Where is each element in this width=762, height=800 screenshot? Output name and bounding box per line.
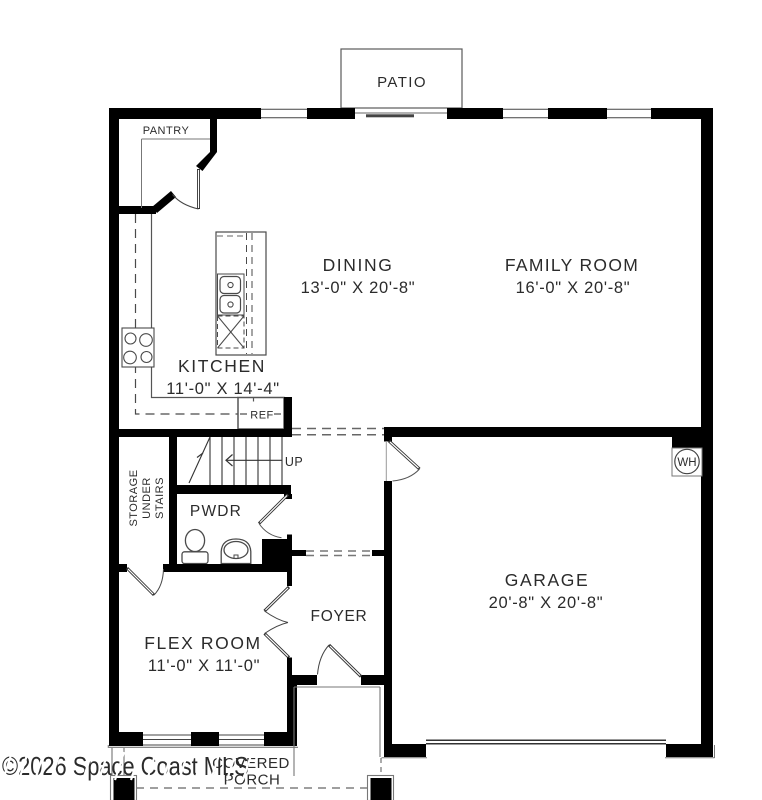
svg-text:11'-0" X 14'-4": 11'-0" X 14'-4" <box>166 380 280 398</box>
svg-text:GARAGE: GARAGE <box>505 570 589 590</box>
svg-text:WH: WH <box>677 457 696 469</box>
svg-text:DINING: DINING <box>323 255 394 275</box>
svg-text:FOYER: FOYER <box>311 608 368 625</box>
svg-text:20'-8" X 20'-8": 20'-8" X 20'-8" <box>489 594 604 612</box>
svg-text:16'-0" X 20'-8": 16'-0" X 20'-8" <box>516 279 631 297</box>
svg-text:PWDR: PWDR <box>190 503 242 520</box>
svg-text:FAMILY ROOM: FAMILY ROOM <box>505 255 639 275</box>
svg-text:FLEX ROOM: FLEX ROOM <box>144 633 261 653</box>
svg-text:KITCHEN: KITCHEN <box>178 356 266 376</box>
svg-text:UNDER: UNDER <box>141 477 153 519</box>
svg-text:REF: REF <box>250 410 274 422</box>
svg-text:11'-0" X 11'-0": 11'-0" X 11'-0" <box>148 657 260 675</box>
svg-text:PATIO: PATIO <box>377 74 427 91</box>
svg-text:PANTRY: PANTRY <box>143 125 190 137</box>
svg-text:13'-0" X 20'-8": 13'-0" X 20'-8" <box>301 279 416 297</box>
svg-text:UP: UP <box>285 455 303 469</box>
svg-text:STORAGE: STORAGE <box>128 469 140 526</box>
svg-text:STAIRS: STAIRS <box>154 477 166 519</box>
